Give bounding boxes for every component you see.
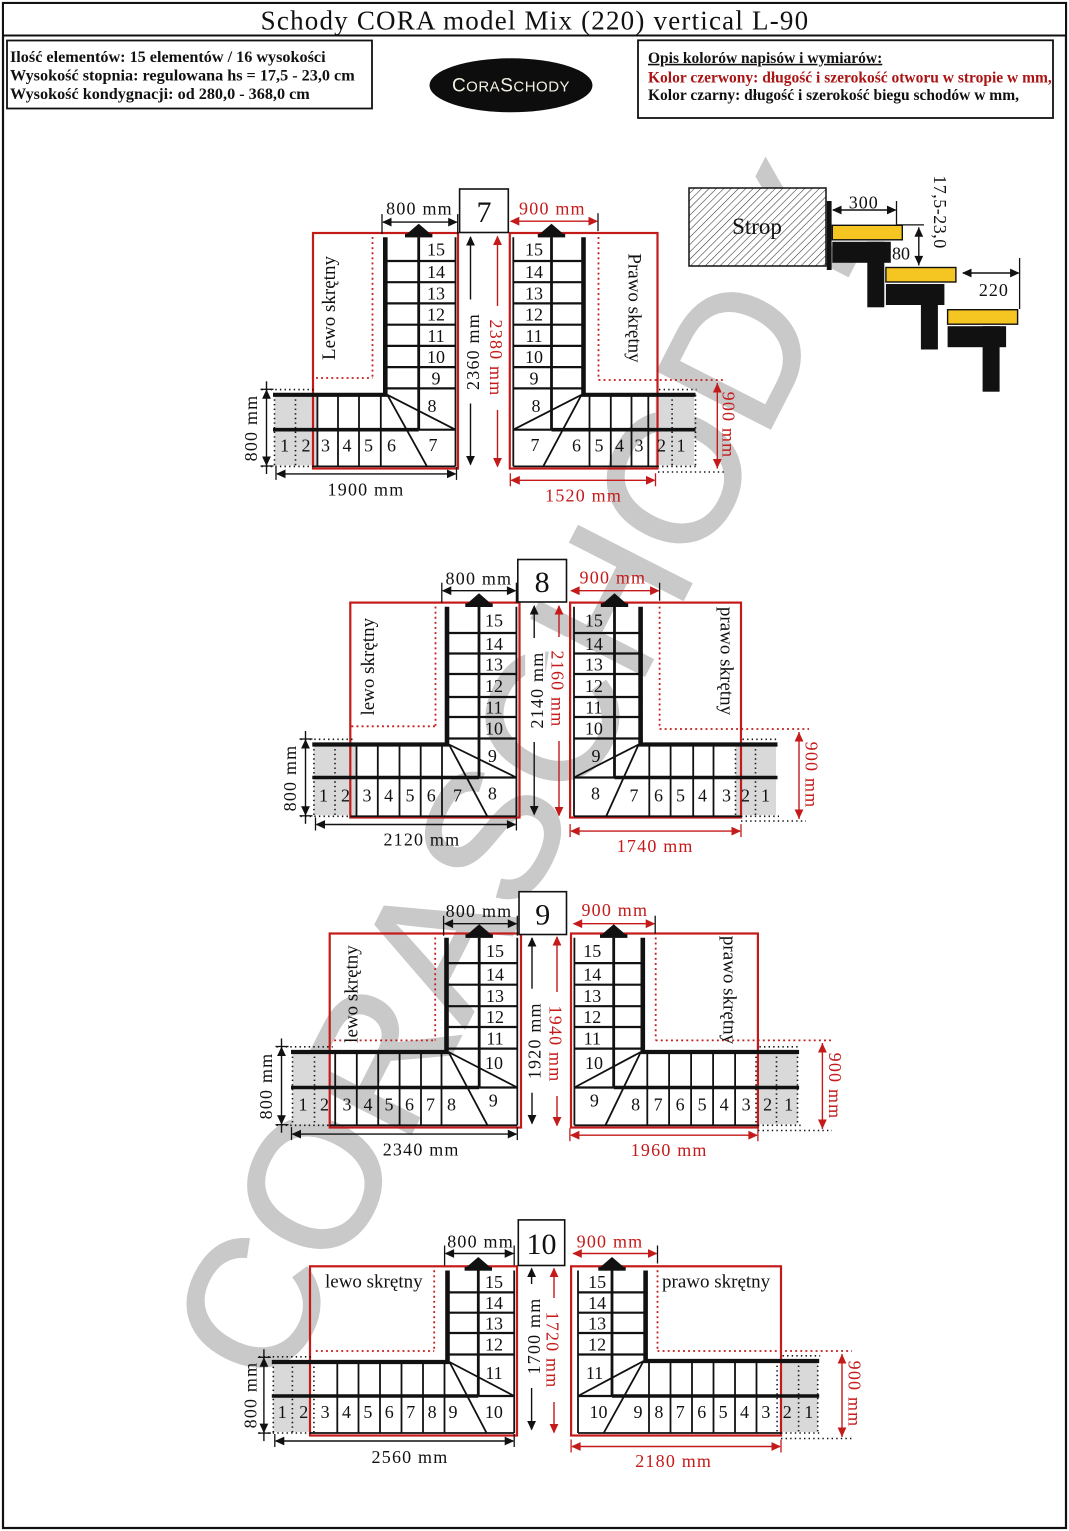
svg-text:2120 mm: 2120 mm xyxy=(383,829,460,849)
svg-text:3: 3 xyxy=(635,436,644,456)
svg-text:1: 1 xyxy=(677,436,686,456)
svg-text:2160 mm: 2160 mm xyxy=(547,651,567,728)
svg-text:15: 15 xyxy=(525,240,543,260)
svg-text:prawo skrętny: prawo skrętny xyxy=(715,607,736,716)
svg-text:14: 14 xyxy=(486,965,504,985)
svg-text:lewo skrętny: lewo skrętny xyxy=(325,1271,423,1292)
svg-text:5: 5 xyxy=(719,1402,728,1422)
svg-text:4: 4 xyxy=(720,1094,729,1114)
svg-text:13: 13 xyxy=(583,986,601,1006)
svg-text:2: 2 xyxy=(302,436,311,456)
svg-text:7: 7 xyxy=(676,1402,685,1422)
svg-text:15: 15 xyxy=(486,941,504,961)
svg-text:15: 15 xyxy=(427,240,445,260)
svg-text:3: 3 xyxy=(343,1094,352,1114)
svg-text:11: 11 xyxy=(586,1363,603,1383)
svg-text:12: 12 xyxy=(583,1007,601,1027)
svg-text:13: 13 xyxy=(525,283,543,303)
svg-text:1: 1 xyxy=(319,785,328,805)
svg-text:6: 6 xyxy=(387,436,396,456)
svg-text:3: 3 xyxy=(761,1402,770,1422)
svg-text:17,5-23,0: 17,5-23,0 xyxy=(930,175,950,249)
svg-text:11: 11 xyxy=(486,1028,503,1048)
svg-text:1520 mm: 1520 mm xyxy=(545,485,622,505)
svg-text:2360 mm: 2360 mm xyxy=(463,313,483,390)
svg-text:5: 5 xyxy=(676,785,685,805)
svg-text:5: 5 xyxy=(595,436,604,456)
svg-text:1920 mm: 1920 mm xyxy=(525,1002,545,1079)
svg-text:10: 10 xyxy=(485,1402,503,1422)
svg-text:prawo skrętny: prawo skrętny xyxy=(662,1271,771,1292)
svg-text:2: 2 xyxy=(763,1094,772,1114)
svg-text:900 mm: 900 mm xyxy=(719,392,739,459)
svg-text:300: 300 xyxy=(849,193,879,213)
svg-text:14: 14 xyxy=(485,634,503,654)
svg-text:8: 8 xyxy=(631,1094,640,1114)
svg-text:15: 15 xyxy=(485,1272,503,1292)
svg-text:10: 10 xyxy=(485,718,503,738)
svg-text:7: 7 xyxy=(429,435,438,455)
svg-text:3: 3 xyxy=(722,785,731,805)
svg-text:800 mm: 800 mm xyxy=(256,1053,276,1120)
svg-text:5: 5 xyxy=(385,1094,394,1114)
svg-text:8: 8 xyxy=(532,396,541,416)
svg-text:Schody CORA model Mix (220) ve: Schody CORA model Mix (220) vertical L-9… xyxy=(261,6,810,36)
svg-text:11: 11 xyxy=(485,1363,502,1383)
svg-text:2560 mm: 2560 mm xyxy=(372,1447,449,1467)
svg-text:12: 12 xyxy=(588,1334,606,1354)
svg-text:3: 3 xyxy=(321,1402,330,1422)
svg-text:Prawo skrętny: Prawo skrętny xyxy=(624,253,645,363)
svg-text:800 mm: 800 mm xyxy=(446,569,513,589)
svg-text:7: 7 xyxy=(477,196,492,229)
svg-text:15: 15 xyxy=(585,611,603,631)
svg-text:2180 mm: 2180 mm xyxy=(635,1451,712,1471)
svg-text:1900 mm: 1900 mm xyxy=(328,479,405,499)
svg-text:9: 9 xyxy=(590,1091,599,1111)
svg-text:1: 1 xyxy=(299,1094,308,1114)
svg-text:11: 11 xyxy=(427,326,444,346)
svg-text:Kolor czarny: długość i szerok: Kolor czarny: długość i szerokość biegu … xyxy=(648,87,1019,104)
svg-text:2: 2 xyxy=(783,1402,792,1422)
svg-text:7: 7 xyxy=(630,785,639,805)
svg-text:11: 11 xyxy=(485,698,502,718)
svg-text:5: 5 xyxy=(364,436,373,456)
svg-text:13: 13 xyxy=(486,986,504,1006)
svg-text:12: 12 xyxy=(485,676,503,696)
svg-text:6: 6 xyxy=(427,785,436,805)
svg-text:8: 8 xyxy=(488,784,497,804)
svg-text:prawo skrętny: prawo skrętny xyxy=(718,936,739,1045)
svg-text:14: 14 xyxy=(525,262,543,282)
svg-text:900 mm: 900 mm xyxy=(581,900,648,920)
svg-text:2: 2 xyxy=(657,436,666,456)
svg-text:800 mm: 800 mm xyxy=(241,395,261,462)
svg-text:15: 15 xyxy=(588,1272,606,1292)
svg-text:4: 4 xyxy=(384,785,393,805)
svg-text:900 mm: 900 mm xyxy=(825,1053,845,1120)
svg-text:Wysokość kondygnacji: od 280,0: Wysokość kondygnacji: od 280,0 - 368,0 c… xyxy=(10,85,310,103)
svg-text:4: 4 xyxy=(342,1402,351,1422)
svg-text:9: 9 xyxy=(432,368,441,388)
svg-text:Lewo skrętny: Lewo skrętny xyxy=(319,256,340,360)
svg-text:6: 6 xyxy=(676,1094,685,1114)
svg-text:1: 1 xyxy=(784,1094,793,1114)
svg-text:2: 2 xyxy=(741,785,750,805)
svg-text:2: 2 xyxy=(320,1094,329,1114)
svg-text:8: 8 xyxy=(428,1402,437,1422)
svg-text:10: 10 xyxy=(485,1053,503,1073)
svg-text:7: 7 xyxy=(531,435,540,455)
svg-text:13: 13 xyxy=(485,1314,503,1334)
svg-text:8: 8 xyxy=(654,1402,663,1422)
svg-text:4: 4 xyxy=(343,436,352,456)
svg-text:9: 9 xyxy=(489,1091,498,1111)
svg-text:8: 8 xyxy=(447,1094,456,1114)
svg-text:lewo skrętny: lewo skrętny xyxy=(358,617,379,715)
svg-text:10: 10 xyxy=(585,1053,603,1073)
svg-text:7: 7 xyxy=(453,785,462,805)
svg-text:10: 10 xyxy=(590,1402,608,1422)
svg-text:11: 11 xyxy=(585,698,602,718)
svg-text:1720 mm: 1720 mm xyxy=(542,1312,562,1389)
svg-text:14: 14 xyxy=(588,1293,606,1313)
svg-text:12: 12 xyxy=(485,1334,503,1354)
svg-text:Ilość elementów: 15 elementów: Ilość elementów: 15 elementów / 16 wysok… xyxy=(10,48,326,66)
svg-text:14: 14 xyxy=(585,634,603,654)
svg-text:Strop: Strop xyxy=(732,214,782,239)
svg-text:3: 3 xyxy=(363,785,372,805)
svg-text:7: 7 xyxy=(654,1094,663,1114)
svg-text:13: 13 xyxy=(585,654,603,674)
svg-text:11: 11 xyxy=(525,326,542,346)
svg-text:900 mm: 900 mm xyxy=(844,1361,864,1428)
svg-text:10: 10 xyxy=(525,347,543,367)
svg-text:8: 8 xyxy=(535,566,550,599)
svg-text:1: 1 xyxy=(761,785,770,805)
svg-text:8: 8 xyxy=(428,396,437,416)
svg-text:900 mm: 900 mm xyxy=(577,1232,644,1252)
svg-text:12: 12 xyxy=(525,305,543,325)
svg-text:2140 mm: 2140 mm xyxy=(527,652,547,729)
svg-text:4: 4 xyxy=(698,785,707,805)
svg-text:13: 13 xyxy=(427,283,445,303)
svg-text:15: 15 xyxy=(485,611,503,631)
svg-text:9: 9 xyxy=(592,746,601,766)
svg-text:2: 2 xyxy=(299,1402,308,1422)
svg-text:12: 12 xyxy=(486,1007,504,1027)
svg-text:12: 12 xyxy=(427,305,445,325)
svg-text:5: 5 xyxy=(406,785,415,805)
svg-text:900 mm: 900 mm xyxy=(801,742,821,809)
svg-text:1: 1 xyxy=(804,1402,813,1422)
svg-text:5: 5 xyxy=(698,1094,707,1114)
svg-text:8: 8 xyxy=(591,784,600,804)
svg-text:14: 14 xyxy=(583,965,601,985)
svg-text:3: 3 xyxy=(321,436,330,456)
svg-text:800 mm: 800 mm xyxy=(240,1362,260,1429)
svg-text:4: 4 xyxy=(364,1094,373,1114)
svg-text:6: 6 xyxy=(572,436,581,456)
svg-text:800 mm: 800 mm xyxy=(446,901,513,921)
svg-text:9: 9 xyxy=(530,368,539,388)
svg-text:13: 13 xyxy=(485,654,503,674)
svg-text:900 mm: 900 mm xyxy=(580,568,647,588)
svg-text:1960 mm: 1960 mm xyxy=(631,1140,708,1160)
svg-text:5: 5 xyxy=(363,1402,372,1422)
svg-text:Wysokość stopnia: regulowana: Wysokość stopnia: regulowana hs = 17,5 -… xyxy=(10,67,355,85)
svg-text:2340 mm: 2340 mm xyxy=(383,1139,460,1159)
svg-text:9: 9 xyxy=(449,1402,458,1422)
svg-text:14: 14 xyxy=(427,262,445,282)
svg-text:9: 9 xyxy=(535,898,550,931)
svg-text:220: 220 xyxy=(979,280,1009,300)
svg-text:6: 6 xyxy=(385,1402,394,1422)
svg-text:Kolor czerwony: długość i szer: Kolor czerwony: długość i szerokość otwo… xyxy=(648,69,1052,86)
svg-text:7: 7 xyxy=(426,1094,435,1114)
svg-text:4: 4 xyxy=(615,436,624,456)
svg-text:6: 6 xyxy=(654,785,663,805)
svg-text:6: 6 xyxy=(405,1094,414,1114)
svg-text:1: 1 xyxy=(278,1402,287,1422)
svg-text:Opis kolorów napisów i wymiaró: Opis kolorów napisów i wymiarów: xyxy=(648,50,882,67)
svg-text:12: 12 xyxy=(585,676,603,696)
svg-text:800 mm: 800 mm xyxy=(447,1232,514,1252)
svg-text:800 mm: 800 mm xyxy=(280,745,300,812)
svg-text:lewo skrętny: lewo skrętny xyxy=(342,945,363,1043)
svg-text:80: 80 xyxy=(892,244,910,264)
svg-text:11: 11 xyxy=(584,1028,601,1048)
svg-text:4: 4 xyxy=(740,1402,749,1422)
svg-text:2: 2 xyxy=(341,785,350,805)
svg-text:CORASCHODY: CORASCHODY xyxy=(452,76,570,97)
svg-text:10: 10 xyxy=(527,1228,557,1261)
svg-text:9: 9 xyxy=(634,1402,643,1422)
svg-text:1940 mm: 1940 mm xyxy=(545,1006,565,1083)
svg-text:1700 mm: 1700 mm xyxy=(524,1298,544,1375)
svg-text:1740 mm: 1740 mm xyxy=(617,836,694,856)
svg-text:10: 10 xyxy=(427,347,445,367)
svg-text:14: 14 xyxy=(485,1293,503,1313)
svg-text:15: 15 xyxy=(583,941,601,961)
svg-text:7: 7 xyxy=(406,1402,415,1422)
svg-text:13: 13 xyxy=(588,1314,606,1334)
svg-text:9: 9 xyxy=(488,746,497,766)
svg-text:3: 3 xyxy=(742,1094,751,1114)
svg-text:10: 10 xyxy=(585,718,603,738)
svg-text:2380 mm: 2380 mm xyxy=(486,320,506,397)
svg-text:900 mm: 900 mm xyxy=(519,199,586,219)
svg-text:1: 1 xyxy=(280,436,289,456)
svg-text:6: 6 xyxy=(697,1402,706,1422)
svg-text:800 mm: 800 mm xyxy=(386,199,453,219)
